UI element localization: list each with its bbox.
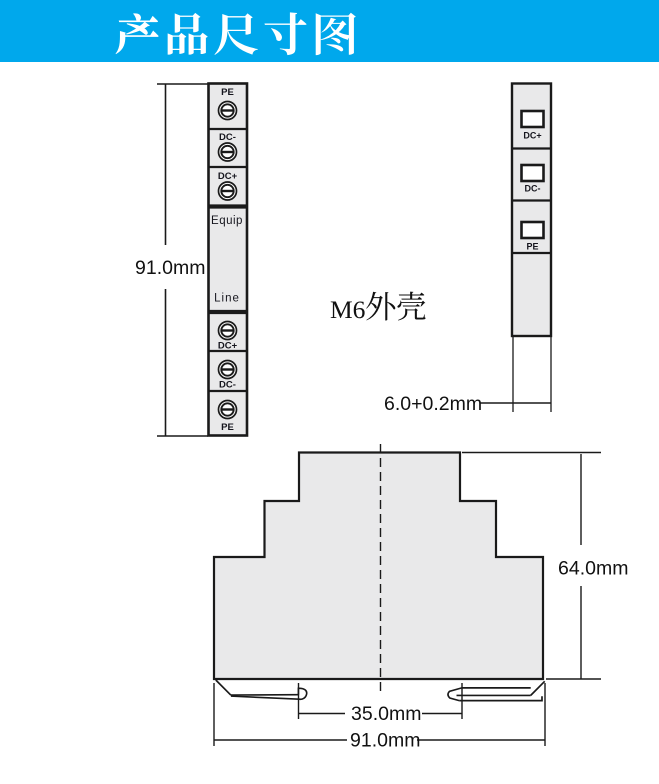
svg-text:DC-: DC-: [219, 380, 236, 391]
svg-text:Equip: Equip: [211, 215, 243, 227]
svg-text:91.0mm: 91.0mm: [350, 730, 420, 752]
svg-text:PE: PE: [526, 242, 538, 252]
svg-text:M6: M6: [330, 295, 365, 324]
svg-text:Line: Line: [214, 293, 240, 305]
svg-text:PE: PE: [221, 422, 234, 433]
svg-text:DC-: DC-: [525, 184, 541, 194]
svg-text:6.0+0.2mm: 6.0+0.2mm: [384, 393, 482, 415]
svg-text:DC+: DC+: [523, 131, 541, 141]
svg-text:DC+: DC+: [218, 341, 238, 352]
svg-text:DC+: DC+: [218, 171, 238, 182]
svg-text:DC-: DC-: [219, 132, 236, 143]
svg-text:35.0mm: 35.0mm: [351, 703, 421, 725]
svg-text:PE: PE: [221, 87, 234, 98]
svg-text:91.0mm: 91.0mm: [135, 257, 205, 279]
svg-text:64.0mm: 64.0mm: [558, 558, 628, 580]
